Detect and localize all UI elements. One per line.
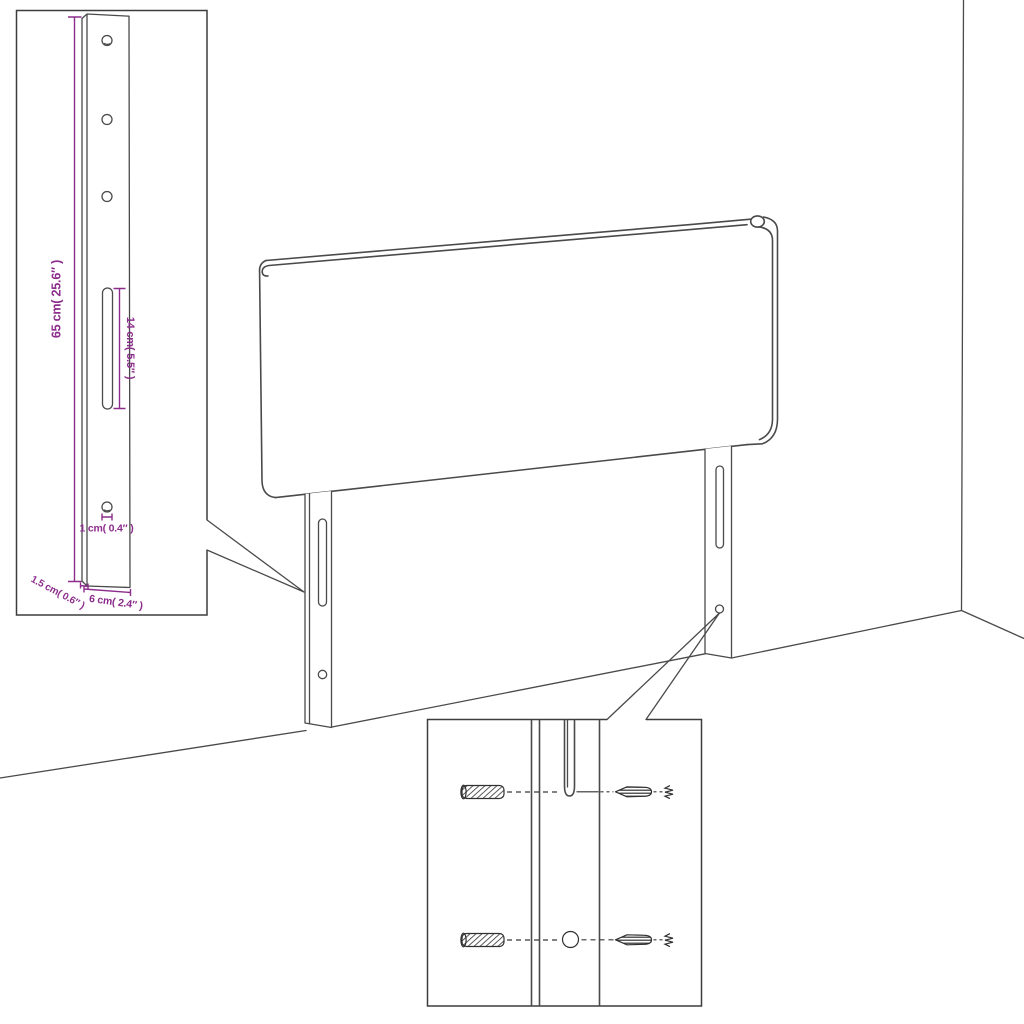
dimension-width: 6 cm( 2.4″ ): [84, 586, 144, 613]
wall-plug-icon: [462, 786, 504, 799]
main-drawing: [0, 0, 1024, 778]
detail-bracket-slot: [103, 288, 113, 409]
wall-plug-icon: [462, 934, 504, 947]
dimension-label-height: 65 cm( 25.6″ ): [50, 260, 64, 338]
headboard: [260, 215, 778, 498]
detail-bracket: [82, 14, 130, 588]
hardware-leg-hole: [563, 932, 579, 948]
detail-inset: 65 cm( 25.6″ ) 14 cm( 5.5″ ) 1 cm( 0.4″ …: [17, 11, 305, 616]
wall-corner-line: [962, 0, 964, 611]
floor-line-left-segment-1: [0, 731, 306, 779]
thread-squiggle-icon: [665, 786, 673, 799]
dimension-slot: 14 cm( 5.5″ ): [114, 289, 137, 409]
hardware-inset: [428, 613, 720, 1006]
hardware-leg-strip: [532, 720, 600, 1006]
floor-line-left-segment-3: [732, 611, 962, 659]
detail-lower-hole-shading: [105, 510, 110, 511]
dimension-label-thickness: 1.5 cm( 0.6″ ): [29, 574, 86, 612]
dimension-label-slot: 14 cm( 5.5″ ): [124, 317, 136, 380]
floor-line-right: [962, 611, 1024, 639]
detail-hole-shading: [105, 44, 110, 45]
detail-bracket-hole-3: [102, 192, 112, 202]
dimension-height: 65 cm( 25.6″ ): [50, 17, 82, 582]
screw-icon: [616, 787, 652, 797]
headboard-face: [260, 215, 777, 498]
diagram-canvas: 65 cm( 25.6″ ) 14 cm( 5.5″ ) 1 cm( 0.4″ …: [0, 0, 1024, 1024]
dimension-label-hole: 1 cm( 0.4″ ): [80, 523, 134, 535]
thread-squiggle-icon: [665, 934, 673, 947]
hardware-leg-slot: [565, 720, 575, 796]
right-leg: [705, 446, 732, 658]
hardware-row-hole: [461, 933, 673, 947]
assembly-diagram: 65 cm( 25.6″ ) 14 cm( 5.5″ ) 1 cm( 0.4″ …: [0, 0, 1024, 1024]
dimension-label-width: 6 cm( 2.4″ ): [88, 593, 143, 612]
detail-callout-lines: [207, 520, 304, 592]
dimension-thickness: 1.5 cm( 0.6″ ): [29, 574, 88, 612]
detail-bracket-hole-2: [102, 115, 112, 125]
hardware-leg-edges: [532, 720, 600, 1006]
right-leg-face: [705, 446, 732, 658]
screw-icon: [616, 935, 652, 945]
hardware-callout-lines: [607, 613, 720, 720]
left-leg: [305, 491, 332, 728]
